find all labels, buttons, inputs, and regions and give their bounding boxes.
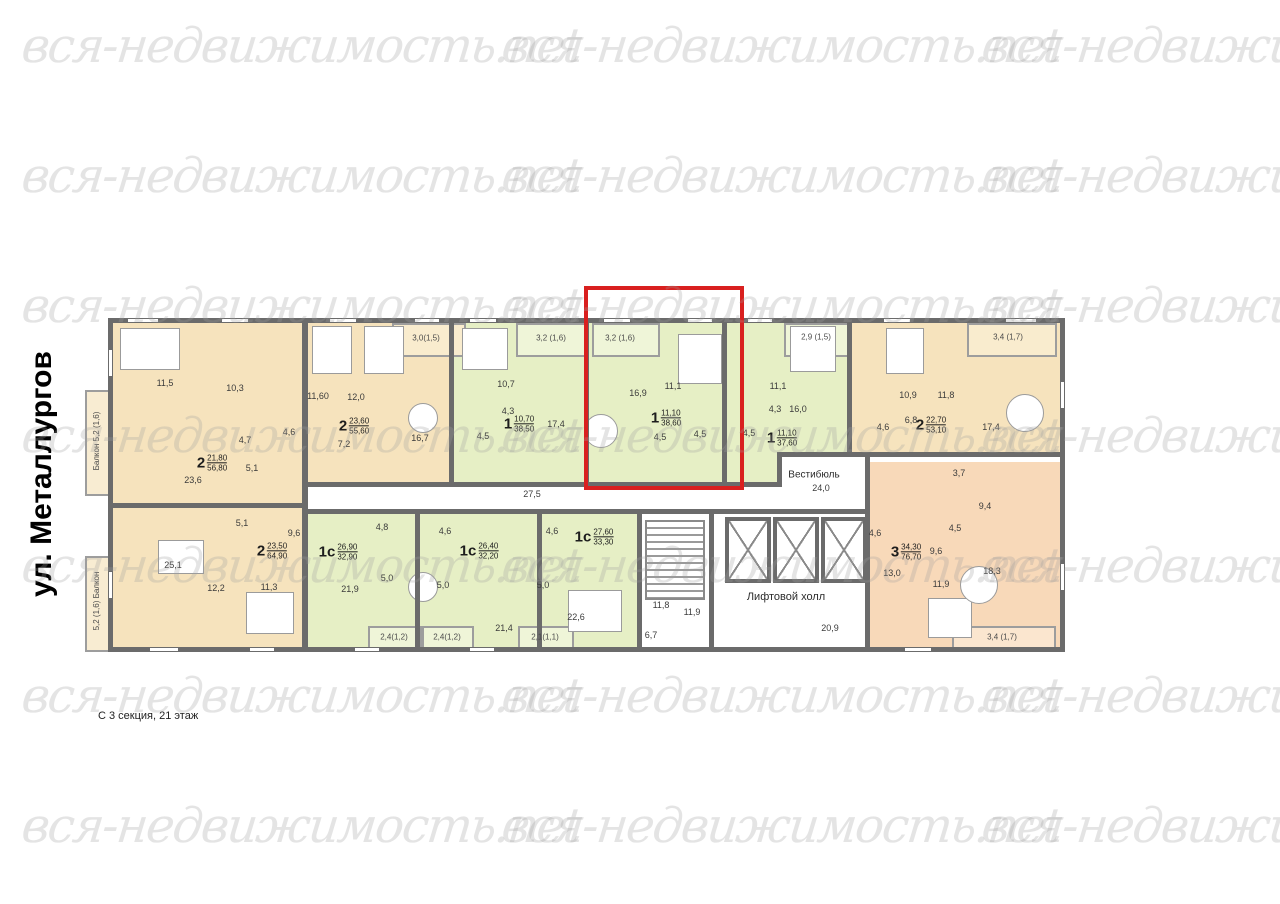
- apartment-label: 2 23,6055,60: [339, 416, 369, 435]
- table: [408, 403, 438, 433]
- room-area-label: 5,0: [381, 573, 394, 583]
- wall: [847, 452, 1060, 457]
- bed: [462, 328, 508, 370]
- window: [884, 319, 910, 322]
- apartment-label: 1с 26,4032,20: [460, 541, 499, 560]
- room-area-label: 9,6: [288, 528, 301, 538]
- vestibule-area-label: 24,0: [812, 483, 830, 493]
- bed: [312, 326, 352, 374]
- window: [470, 319, 496, 322]
- watermark-text: вся-недвижимость.net: [19, 18, 584, 74]
- room-area-label: 4,7: [239, 435, 252, 445]
- room-area-label: 10,7: [497, 379, 515, 389]
- room-area-label: 10,3: [226, 383, 244, 393]
- apartment-label: 1с 27,6033,30: [575, 527, 614, 546]
- balcony-label: 3,2 (1,6): [536, 334, 566, 343]
- apartment-label: 1 10,7038,50: [504, 414, 534, 433]
- window: [1061, 564, 1064, 590]
- room-area-label: 7,2: [338, 439, 351, 449]
- window: [250, 648, 274, 651]
- watermark-text: вся-недвижимость.net: [499, 18, 1064, 74]
- apartment-label: 2 22,7053,10: [916, 415, 946, 434]
- balcony-label: 2,4(1,2): [433, 633, 461, 642]
- window: [1061, 382, 1064, 408]
- wall: [1060, 318, 1065, 652]
- stair-lobby-area-label: 6,7: [645, 630, 658, 640]
- staircase: [645, 520, 705, 600]
- wall: [777, 452, 782, 487]
- stairs-area-label: 11,8: [653, 600, 670, 610]
- street-label: ул. Металлургов: [25, 351, 59, 597]
- room-area-label: 12,0: [347, 392, 365, 402]
- window: [109, 350, 112, 376]
- window: [150, 648, 178, 651]
- balcony-label: 3,0(1,5): [412, 334, 440, 343]
- floor-plan-page: ул. Металлургов С 3 секция, 21 этаж: [0, 0, 1280, 904]
- watermark-text: вся-недвижимость.net: [19, 798, 584, 854]
- table: [408, 572, 438, 602]
- elevator-shaft: [773, 517, 819, 583]
- window: [1006, 319, 1036, 322]
- apartment-label: 2 21,8056,80: [197, 453, 227, 472]
- corridor-area-label: 27,5: [523, 489, 541, 499]
- watermark-text: вся-недвижимость.net: [979, 798, 1280, 854]
- balcony-label: 3,4 (1,7): [987, 633, 1017, 642]
- room-area-label: 4,5: [477, 431, 490, 441]
- bed: [364, 326, 404, 374]
- room-area-label: 23,6: [184, 475, 202, 485]
- room-area-label: 3,7: [953, 468, 966, 478]
- highlighted-apartment-outline[interactable]: [584, 286, 744, 490]
- room-area-label: 9,4: [979, 501, 992, 511]
- watermark-text: вся-недвижимость.net: [979, 668, 1280, 724]
- elevator-shaft: [821, 517, 867, 583]
- window: [222, 319, 248, 322]
- room-area-label: 4,5: [949, 523, 962, 533]
- window: [415, 319, 439, 322]
- table: [1006, 394, 1044, 432]
- room-area-label: 16,0: [789, 404, 807, 414]
- balcony-label: 5,2 (1,6) Балкон: [92, 572, 102, 631]
- room-area-label: 11,5: [157, 378, 174, 388]
- room-area-label: 5,1: [236, 518, 249, 528]
- watermark-text: вся-недвижимость.net: [979, 148, 1280, 204]
- window: [330, 319, 356, 322]
- watermark-text: вся-недвижимость.net: [499, 798, 1064, 854]
- watermark-text: вся-недвижимость.net: [499, 148, 1064, 204]
- window: [128, 319, 158, 322]
- apartment-label: 1с 26,9032,90: [319, 542, 358, 561]
- room-area-label: 25,1: [164, 560, 182, 570]
- room-area-label: 10,9: [899, 390, 917, 400]
- balcony-label: 2,9 (1,5): [801, 333, 831, 342]
- room-area-label: 17,4: [547, 419, 565, 429]
- wall: [415, 514, 420, 647]
- bed: [120, 328, 180, 370]
- room-area-label: 4,6: [877, 422, 890, 432]
- plan-caption: С 3 секция, 21 этаж: [98, 710, 198, 722]
- bed: [568, 590, 622, 632]
- window: [470, 648, 494, 651]
- window: [905, 648, 931, 651]
- room-area-label: 13,0: [883, 568, 901, 578]
- wall: [709, 514, 714, 647]
- room-area-label: 4,6: [546, 526, 559, 536]
- wall: [449, 318, 454, 487]
- window: [355, 648, 379, 651]
- window: [748, 319, 772, 322]
- watermark-text: вся-недвижимость.net: [979, 18, 1280, 74]
- room-area-label: 4,3: [769, 404, 782, 414]
- watermark-text: вся-недвижимость.net: [19, 148, 584, 204]
- apartment-label: 1 11,1037,60: [767, 428, 797, 447]
- room-area-label: 4,5: [743, 428, 756, 438]
- room-area-label: 9,6: [930, 546, 943, 556]
- wall: [637, 514, 642, 647]
- vestibule-label: Вестибюль: [788, 470, 839, 481]
- room-area-label: 21,4: [495, 623, 513, 633]
- balcony-label: 2,1(1,1): [531, 633, 559, 642]
- stair-hall-area-label: 11,9: [684, 607, 701, 617]
- room-area-label: 5,0: [537, 580, 550, 590]
- lift-hall-area-label: 20,9: [821, 623, 839, 633]
- bed: [928, 598, 972, 638]
- room-area-label: 4,6: [439, 526, 452, 536]
- balcony-label: 3,4 (1,7): [993, 333, 1023, 342]
- room-area-label: 16,7: [411, 433, 429, 443]
- room-area-label: 17,4: [982, 422, 1000, 432]
- room-area-label: 12,2: [207, 583, 225, 593]
- bed: [246, 592, 294, 634]
- room-area-label: 11,3: [261, 582, 278, 592]
- room-area-label: 21,9: [341, 584, 359, 594]
- lift-hall-label: Лифтовой холл: [747, 591, 825, 603]
- room-area-label: 5,0: [437, 580, 450, 590]
- room-area-label: 11,9: [933, 579, 950, 589]
- bed: [886, 328, 924, 374]
- apartment-label: 3 34,3076,70: [891, 542, 921, 561]
- wall: [302, 509, 870, 514]
- wall: [108, 503, 308, 508]
- apartment-label: 2 23,5064,90: [257, 541, 287, 560]
- wall: [847, 318, 852, 457]
- room-area-label: 22,6: [567, 612, 585, 622]
- room-area-label: 4,6: [869, 528, 882, 538]
- balcony-label: Балкон 5,2 (1,6): [92, 412, 102, 471]
- window: [109, 572, 112, 598]
- elevator-shaft: [725, 517, 771, 583]
- balcony-label: 2,4(1,2): [380, 633, 408, 642]
- room-area-label: 11,1: [770, 381, 787, 391]
- watermark-text: вся-недвижимость.net: [499, 668, 1064, 724]
- room-area-label: 18,3: [983, 566, 1001, 576]
- room-area-label: 4,6: [283, 427, 296, 437]
- room-area-label: 11,60: [307, 391, 329, 401]
- room-area-label: 11,8: [938, 390, 955, 400]
- room-area-label: 4,8: [376, 522, 389, 532]
- room-area-label: 5,1: [246, 463, 259, 473]
